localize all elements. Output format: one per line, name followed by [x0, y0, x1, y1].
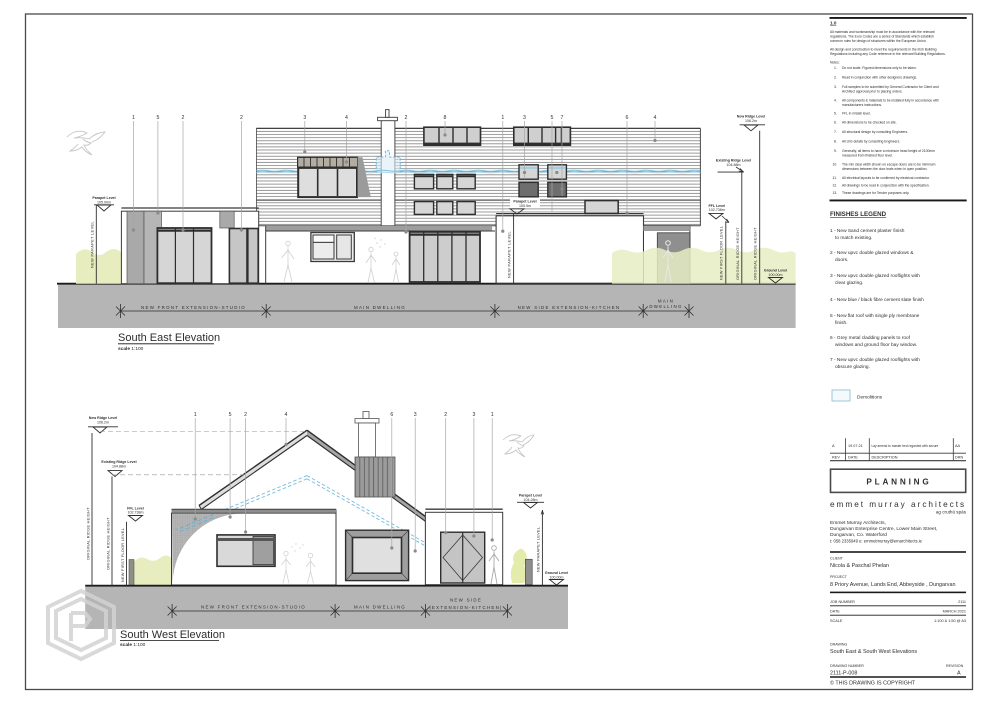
svg-text:New Ridge Level: New Ridge Level — [89, 416, 118, 420]
svg-text:FFL in m/slab level.: FFL in m/slab level. — [842, 112, 871, 116]
svg-text:4: 4 — [285, 412, 288, 418]
svg-text:regulations. The Euro Codes ar: regulations. The Euro Codes are a series… — [830, 35, 934, 39]
svg-text:3: 3 — [472, 412, 475, 418]
svg-text:scale 1:100: scale 1:100 — [118, 346, 144, 352]
svg-text:2: 2 — [444, 412, 447, 418]
svg-text:manufacturers instructions.: manufacturers instructions. — [842, 103, 882, 107]
svg-text:The min clear width shown on e: The min clear width shown on escape door… — [842, 163, 936, 167]
svg-text:Parapet Level: Parapet Level — [92, 196, 115, 200]
svg-text:ORIGINAL RIDGE HEIGHT: ORIGINAL RIDGE HEIGHT — [107, 517, 111, 570]
svg-text:Parapet Level: Parapet Level — [519, 494, 542, 498]
svg-text:All drawings to be read in con: All drawings to be read in conjunction w… — [842, 184, 930, 188]
svg-text:© THIS DRAWING IS COPYRIGHT: © THIS DRAWING IS COPYRIGHT — [830, 680, 916, 687]
svg-text:5: 5 — [551, 115, 554, 121]
svg-text:3: 3 — [414, 412, 417, 418]
svg-text:100.00m: 100.00m — [769, 273, 783, 277]
svg-text:NEW FRONT EXTENSION-STUDIO: NEW FRONT EXTENSION-STUDIO — [141, 305, 246, 310]
svg-text:Read in conjunction with other: Read in conjunction with other designers… — [842, 76, 917, 80]
svg-text:Existing Ridge Level: Existing Ridge Level — [101, 460, 136, 464]
svg-text:5 - New flat roof with single: 5 - New flat roof with single ply membra… — [830, 313, 920, 319]
svg-text:5.: 5. — [834, 112, 837, 116]
svg-text:NEW SIDE EXTENSION-KITCHEN: NEW SIDE EXTENSION-KITCHEN — [518, 305, 621, 310]
svg-text:Nicola & Paschal Phelan: Nicola & Paschal Phelan — [830, 563, 889, 569]
svg-text:AA: AA — [955, 444, 961, 448]
svg-text:Parapet Level: Parapet Level — [513, 200, 536, 204]
svg-text:3.: 3. — [834, 85, 837, 89]
svg-text:8: 8 — [444, 115, 447, 121]
svg-text:MARCH 2021: MARCH 2021 — [943, 609, 966, 613]
svg-text:All dimensions to be checked o: All dimensions to be checked on site. — [842, 121, 897, 125]
svg-text:DWELLING: DWELLING — [649, 304, 682, 309]
svg-text:2111: 2111 — [958, 600, 966, 604]
svg-text:South East & South West Elevat: South East & South West Elevations — [830, 649, 917, 655]
svg-text:Ground Level: Ground Level — [764, 269, 787, 273]
svg-text:South East Elevation: South East Elevation — [118, 332, 220, 344]
svg-text:All electrical layouts to be c: All electrical layouts to be confirmed b… — [842, 176, 930, 180]
svg-text:Generally, all items to have a: Generally, all items to have a minimum h… — [842, 149, 935, 153]
svg-text:ag cruthú spás: ag cruthú spás — [936, 510, 967, 515]
svg-text:4: 4 — [345, 115, 348, 121]
svg-text:11.: 11. — [833, 176, 837, 180]
svg-text:emmet murray architects: emmet murray architects — [830, 500, 966, 509]
svg-text:doors.: doors. — [835, 257, 848, 263]
svg-text:102.738m: 102.738m — [128, 511, 144, 515]
svg-text:1 - New Sand cement plaster fi: 1 - New Sand cement plaster finish — [830, 228, 905, 234]
svg-text:windows and ground floor bay w: windows and ground floor bay window. — [835, 342, 917, 348]
svg-text:10.: 10. — [833, 163, 838, 167]
svg-text:MAIN: MAIN — [658, 299, 674, 304]
svg-text:PLANNING: PLANNING — [866, 477, 931, 486]
svg-text:7: 7 — [561, 115, 564, 121]
svg-text:12.: 12. — [833, 184, 838, 188]
svg-text:Ground Level: Ground Level — [545, 571, 568, 575]
svg-text:FFL Level: FFL Level — [127, 506, 144, 510]
svg-text:NEW SIDE: NEW SIDE — [450, 598, 482, 603]
svg-text:NEW PARAPET LEVEL: NEW PARAPET LEVEL — [508, 231, 512, 278]
svg-text:SCALE: SCALE — [830, 619, 843, 623]
svg-text:1: 1 — [491, 412, 494, 418]
svg-text:102.738m: 102.738m — [709, 208, 725, 212]
svg-text:104.88m: 104.88m — [727, 163, 741, 167]
svg-text:1.: 1. — [834, 66, 837, 70]
svg-text:6 - Grey metal cladding panels: 6 - Grey metal cladding panels to roof — [830, 335, 911, 341]
svg-text:7 - New upvc double glazed roo: 7 - New upvc double glazed rooflights wi… — [830, 357, 920, 363]
svg-text:Architect approval prior to pl: Architect approval prior to placing orde… — [842, 90, 903, 94]
svg-text:obscure glazing.: obscure glazing. — [835, 364, 870, 370]
svg-text:104.28m: 104.28m — [524, 498, 538, 502]
svg-text:ORIGINAL RIDGE HEIGHT: ORIGINAL RIDGE HEIGHT — [754, 227, 758, 280]
svg-text:Emmet Murray Architects,: Emmet Murray Architects, — [830, 520, 886, 526]
svg-text:106.2m: 106.2m — [97, 420, 109, 424]
svg-text:DRN: DRN — [955, 456, 963, 460]
svg-text:1.0: 1.0 — [830, 21, 837, 26]
svg-text:South West Elevation: South West Elevation — [120, 629, 225, 641]
svg-text:3: 3 — [523, 115, 526, 121]
svg-text:4: 4 — [654, 115, 657, 121]
svg-text:t: 058 2335949 e: emmetmurr: t: 058 2335949 e: emmetmurray@emarchitec… — [830, 539, 923, 544]
svg-text:106.2m: 106.2m — [745, 119, 757, 123]
svg-text:Full samples to be submitted b: Full samples to be submitted by General … — [842, 85, 939, 89]
svg-text:Demolitions: Demolitions — [857, 395, 883, 401]
svg-text:9.: 9. — [834, 149, 837, 153]
svg-text:REVISION: REVISION — [946, 664, 964, 668]
svg-text:13.: 13. — [833, 191, 838, 195]
svg-text:All materials and workmanship: All materials and workmanship must be in… — [830, 30, 935, 34]
svg-text:1: 1 — [194, 412, 197, 418]
svg-text:19.07.21: 19.07.21 — [848, 444, 863, 448]
svg-text:2: 2 — [182, 115, 185, 121]
svg-text:measured from finished floor l: measured from finished floor level. — [842, 154, 893, 158]
svg-text:Notes:: Notes: — [830, 61, 840, 65]
svg-text:DATE: DATE — [848, 456, 858, 460]
svg-text:common rules for design of str: common rules for design of structures wi… — [830, 39, 927, 43]
svg-text:7.: 7. — [834, 130, 837, 134]
svg-text:All structural design by consu: All structural design by consulting Engi… — [842, 130, 908, 134]
svg-text:DATE: DATE — [830, 609, 840, 613]
svg-text:2: 2 — [240, 115, 243, 121]
svg-text:6.: 6. — [834, 121, 837, 125]
svg-text:NEW FIRST FLOOR LEVEL: NEW FIRST FLOOR LEVEL — [121, 528, 125, 582]
svg-text:Dungarvan, Co. Waterford: Dungarvan, Co. Waterford — [830, 532, 887, 538]
svg-text:New Ridge Level: New Ridge Level — [737, 115, 766, 119]
svg-text:1:100 & 1:50 @ A3: 1:100 & 1:50 @ A3 — [934, 619, 966, 623]
svg-text:6: 6 — [626, 115, 629, 121]
svg-text:Lay amend to master bed regard: Lay amend to master bed regarded with se… — [872, 444, 939, 448]
svg-text:2111-P-008: 2111-P-008 — [830, 671, 857, 677]
svg-text:NEW PARAPET LEVEL: NEW PARAPET LEVEL — [536, 527, 540, 572]
svg-text:All design and construction to: All design and construction to meet the … — [830, 48, 937, 52]
svg-text:All components & materials to: All components & materials to be install… — [842, 99, 939, 103]
svg-text:JOB NUMBER: JOB NUMBER — [830, 600, 855, 604]
svg-text:ORIGINAL RIDGE HEIGHT: ORIGINAL RIDGE HEIGHT — [736, 227, 740, 280]
svg-text:2: 2 — [244, 412, 247, 418]
svg-text:3 - New upvc double glazed roo: 3 - New upvc double glazed rooflights wi… — [830, 273, 920, 279]
svg-text:NEW FIRST FLOOR LEVEL: NEW FIRST FLOOR LEVEL — [720, 226, 724, 280]
svg-text:MAIN DWELLING: MAIN DWELLING — [354, 605, 406, 610]
svg-text:MAIN DWELLING: MAIN DWELLING — [354, 305, 406, 310]
svg-text:DESCRIPTION: DESCRIPTION — [872, 456, 898, 460]
svg-text:finish.: finish. — [835, 320, 848, 326]
svg-text:ORIGINAL RIDGE HEIGHT: ORIGINAL RIDGE HEIGHT — [87, 507, 91, 560]
svg-text:PROJECT: PROJECT — [830, 575, 848, 579]
svg-text:REV: REV — [832, 456, 840, 460]
svg-text:DRAWING: DRAWING — [830, 643, 847, 647]
svg-text:FFL Level: FFL Level — [708, 204, 725, 208]
svg-text:Do not scale. Figured dimensio: Do not scale. Figured dimensions only to… — [842, 66, 917, 70]
svg-text:to match existing.: to match existing. — [835, 235, 872, 241]
svg-text:104.88m: 104.88m — [112, 464, 126, 468]
svg-text:DRAWING NUMBER: DRAWING NUMBER — [830, 664, 864, 668]
svg-text:clear glazing.: clear glazing. — [835, 280, 863, 286]
svg-text:NEW FRONT EXTENSION-STUDIO: NEW FRONT EXTENSION-STUDIO — [201, 605, 306, 610]
svg-text:scale 1:100: scale 1:100 — [120, 642, 146, 648]
svg-text:Existing Ridge Level: Existing Ridge Level — [716, 159, 751, 163]
svg-text:6: 6 — [390, 412, 393, 418]
svg-text:1: 1 — [132, 115, 135, 121]
svg-text:100.00m: 100.00m — [550, 575, 564, 579]
svg-text:105.5m: 105.5m — [519, 204, 531, 208]
svg-text:A: A — [957, 671, 961, 677]
svg-text:2 - New upvc double glazed win: 2 - New upvc double glazed windows & — [830, 250, 914, 256]
svg-text:105.00m: 105.00m — [97, 200, 111, 204]
svg-text:5: 5 — [156, 115, 159, 121]
svg-text:8.: 8. — [834, 140, 837, 144]
svg-text:These drawings are for Tender: These drawings are for Tender purposes o… — [842, 191, 909, 195]
svg-text:CLIENT: CLIENT — [830, 557, 844, 561]
svg-text:NEW PARAPET LEVEL: NEW PARAPET LEVEL — [91, 221, 95, 268]
svg-text:Dungarvan Enterprise Centre, L: Dungarvan Enterprise Centre, Lower Main … — [830, 526, 937, 532]
svg-text:5: 5 — [229, 412, 232, 418]
svg-text:1: 1 — [501, 115, 504, 121]
svg-text:All U/G details by consulting: All U/G details by consulting Engineers. — [842, 140, 900, 144]
svg-text:FINISHES LEGEND: FINISHES LEGEND — [830, 211, 887, 218]
svg-text:2.: 2. — [834, 76, 837, 80]
svg-text:Regulations including any Code: Regulations including any Code reference… — [830, 52, 946, 56]
svg-text:3: 3 — [303, 115, 306, 121]
svg-text:4.: 4. — [834, 99, 837, 103]
svg-text:dimensions between the door le: dimensions between the door leafs when i… — [842, 167, 927, 171]
svg-text:|EXTENSION-KITCHEN|: |EXTENSION-KITCHEN| — [429, 605, 502, 610]
svg-text:4 - New blue / black fibre cem: 4 - New blue / black fibre cement slate … — [830, 297, 924, 303]
svg-text:2: 2 — [405, 115, 408, 121]
svg-text:8 Priory Avenue, Lands End, Ab: 8 Priory Avenue, Lands End, Abbeyside , … — [830, 582, 955, 588]
